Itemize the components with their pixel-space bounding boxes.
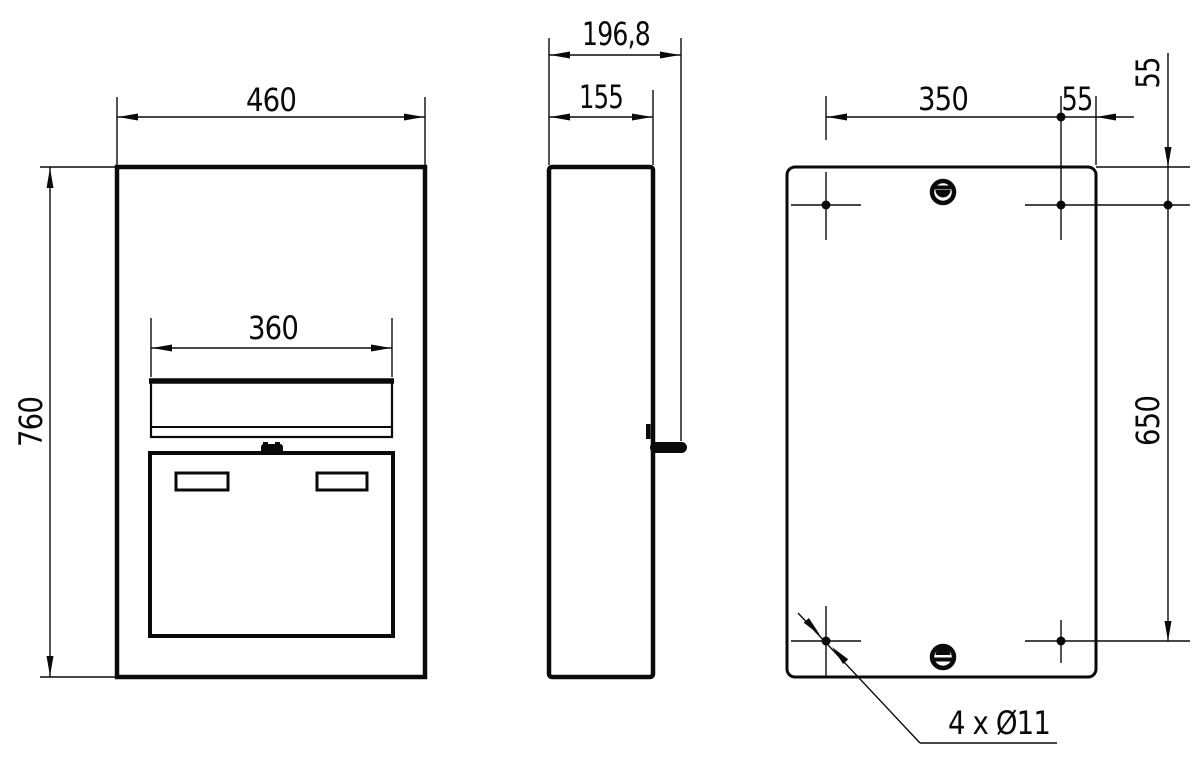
dim-label-slot-width: 360 [248,309,298,347]
keyhole-slot-bar [932,658,954,662]
hole-callout-label: 4 x Ø11 [948,704,1050,742]
hole [822,201,831,210]
drawing-canvas: 460 760 360 196,8 155 [0,0,1200,770]
flap-handle [650,442,687,453]
dim-label-depth-total: 196,8 [582,15,650,53]
hole [822,637,831,646]
dim-label-front-height: 760 [12,397,50,447]
hole [1057,201,1066,210]
technical-drawing: 460 760 360 196,8 155 [0,0,1200,770]
keyhole-slot-bar [932,186,954,190]
dim-label-hole-offset-right: 55 [1062,80,1093,118]
dim-label-depth-body: 155 [579,78,623,116]
dim-label-front-width: 460 [246,81,296,119]
dim-label-hole-spacing-h: 350 [918,80,968,118]
hole [1057,637,1066,646]
flap-pivot-mark [646,424,651,439]
dim-label-hole-spacing-v: 650 [1129,396,1167,446]
dim-label-hole-offset-top: 55 [1129,58,1167,89]
